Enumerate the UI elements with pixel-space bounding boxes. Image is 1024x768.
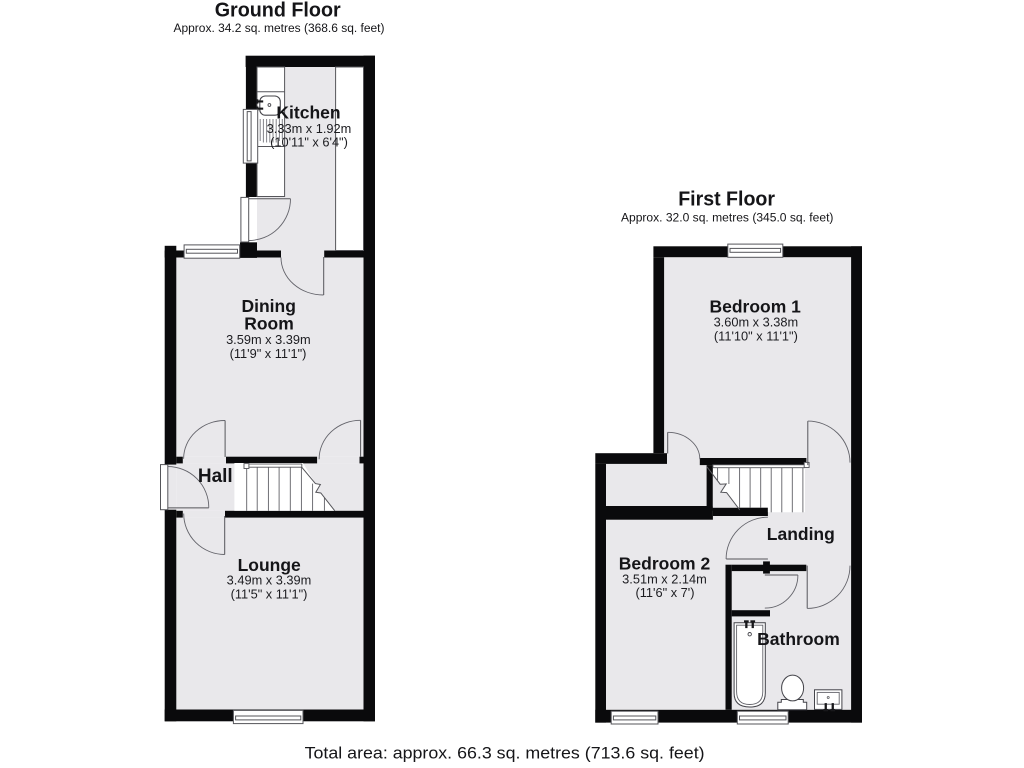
svg-text:First Floor: First Floor — [678, 188, 775, 210]
svg-text:Bedroom 1: Bedroom 1 — [709, 296, 801, 316]
svg-text:3.60m x 3.38m: 3.60m x 3.38m — [714, 314, 799, 329]
svg-text:(11'9" x 11'1"): (11'9" x 11'1") — [230, 346, 307, 361]
svg-text:Landing: Landing — [767, 524, 835, 544]
svg-text:Bathroom: Bathroom — [757, 629, 840, 649]
svg-text:Ground Floor: Ground Floor — [215, 0, 341, 21]
svg-text:Room: Room — [244, 314, 294, 334]
svg-text:Approx. 34.2 sq. metres (368.6: Approx. 34.2 sq. metres (368.6 sq. feet) — [174, 21, 385, 35]
svg-text:Total area: approx. 66.3 sq. m: Total area: approx. 66.3 sq. metres (713… — [305, 744, 705, 762]
svg-text:Kitchen: Kitchen — [276, 103, 340, 123]
svg-text:(10'11" x 6'4"): (10'11" x 6'4") — [270, 135, 348, 150]
svg-text:(11'10" x 11'1"): (11'10" x 11'1") — [714, 328, 798, 343]
svg-text:Approx. 32.0 sq. metres (345.0: Approx. 32.0 sq. metres (345.0 sq. feet) — [621, 211, 834, 225]
svg-text:3.59m x 3.39m: 3.59m x 3.39m — [226, 332, 311, 347]
svg-text:Hall: Hall — [198, 466, 233, 487]
svg-text:(11'6" x 7'): (11'6" x 7') — [636, 585, 695, 600]
svg-text:3.49m x 3.39m: 3.49m x 3.39m — [227, 573, 312, 588]
svg-text:(11'5" x 11'1"): (11'5" x 11'1") — [231, 587, 308, 602]
